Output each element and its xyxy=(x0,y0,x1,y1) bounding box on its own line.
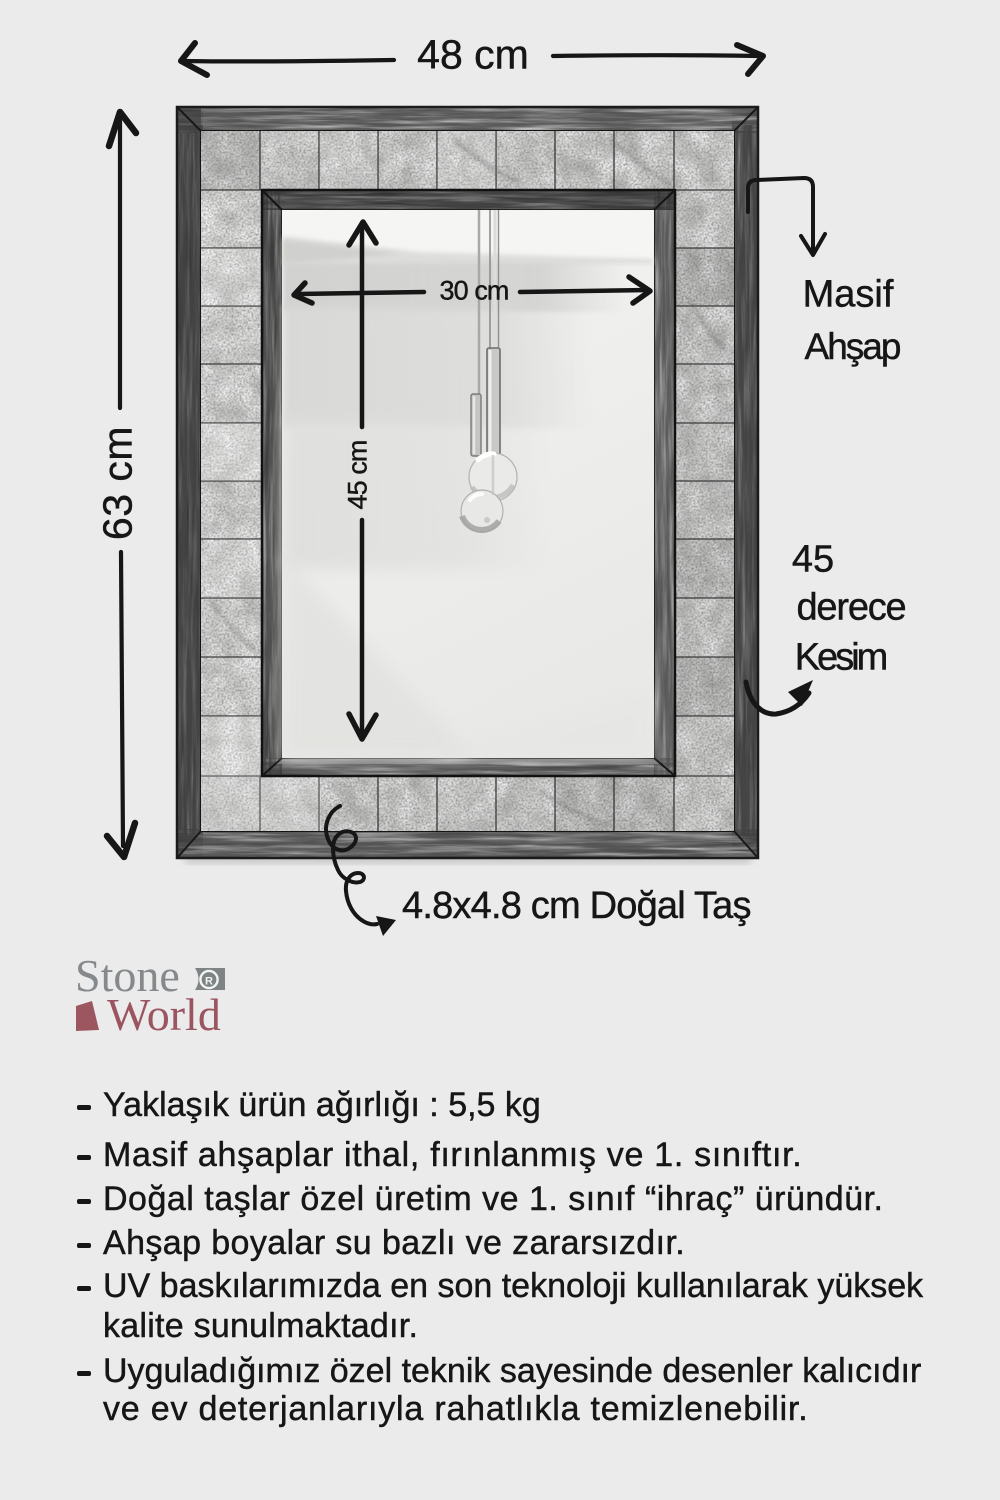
svg-text:R: R xyxy=(205,976,213,988)
